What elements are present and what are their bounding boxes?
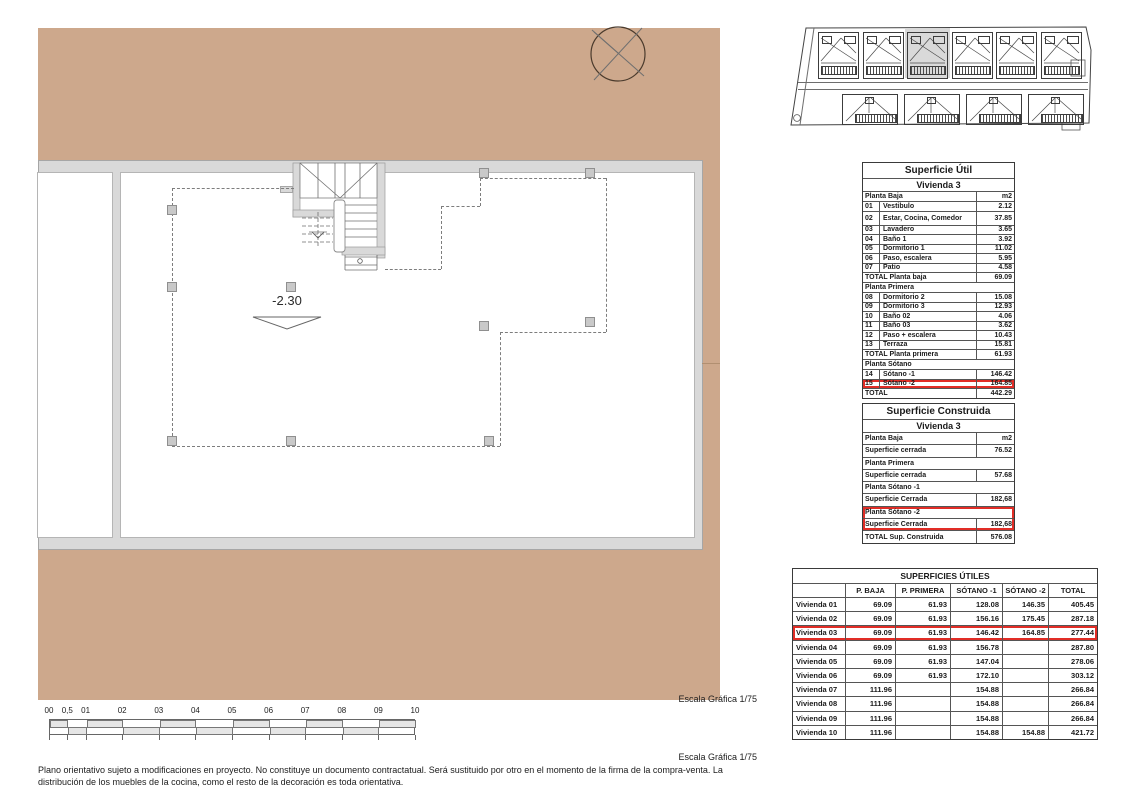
villa-unit-top [818, 32, 859, 79]
villa-unit-top [952, 32, 993, 79]
row-number: 11 [863, 322, 880, 331]
row-value: 61.93 [895, 612, 950, 625]
terrace-hatch [821, 66, 857, 75]
furniture-rect [1000, 36, 1010, 44]
row-label: Baño 1 [880, 236, 976, 243]
graphic-scale-bar [49, 719, 415, 735]
row-label: Vivienda 08 [793, 697, 845, 710]
row-value: 442.29 [976, 389, 1014, 398]
table-row: Vivienda 09111.96154.88266.84 [793, 711, 1097, 725]
scale-tick [415, 735, 416, 740]
pillar-footing [585, 317, 595, 327]
column-header: TOTAL [1048, 584, 1097, 597]
row-label: Vivienda 09 [793, 712, 845, 725]
row-label: Vivienda 05 [793, 655, 845, 668]
row-value: 69.09 [845, 655, 895, 668]
table-row: 15 Sótano -2 164.85 [863, 379, 1014, 389]
row-value: 405.45 [1048, 598, 1097, 611]
disclaimer-text: Plano orientativo sujeto a modificacione… [38, 765, 764, 788]
row-value: 12.93 [976, 303, 1014, 312]
table-row: TOTAL Sup. Construida576.08 [863, 530, 1014, 543]
villa-unit-bottom [1028, 94, 1084, 125]
row-value: 156.78 [950, 641, 1002, 654]
row-label: Paso + escalera [880, 332, 976, 339]
row-label: Superficie Cerrada [863, 521, 976, 528]
row-value: 182,68 [976, 494, 1014, 506]
row-number: 06 [863, 254, 880, 263]
row-value: 164.85 [976, 380, 1014, 389]
table-row: Vivienda 10111.96154.88154.88421.72 [793, 725, 1097, 739]
scale-label: 04 [191, 706, 200, 715]
row-value: 15.81 [976, 341, 1014, 350]
villa-unit-bottom [966, 94, 1022, 125]
road-line [798, 82, 1088, 83]
row-value: 61.93 [895, 655, 950, 668]
road-line [798, 89, 1088, 90]
row-value: 266.84 [1048, 712, 1097, 725]
column-header [793, 584, 845, 597]
terrace-hatch [866, 66, 902, 75]
scale-label: 08 [337, 706, 346, 715]
excavation-outline [385, 269, 441, 270]
row-number: 14 [863, 370, 880, 379]
furniture-rect [822, 36, 832, 44]
row-value: 15.08 [976, 293, 1014, 302]
row-value [895, 683, 950, 696]
excavation-outline [441, 206, 480, 207]
table-row: Planta Bajam2 [863, 432, 1014, 444]
terrace-hatch [1041, 114, 1083, 123]
row-value: 303.12 [1048, 669, 1097, 682]
scale-segment [270, 727, 307, 735]
scale-tick [86, 735, 87, 740]
excavation-outline [441, 206, 442, 269]
scale-segment [233, 720, 270, 728]
scale-segment [50, 720, 68, 728]
scale-segment [68, 727, 86, 735]
scale-segment [379, 720, 416, 728]
row-value: 154.88 [950, 697, 1002, 710]
table-row: Vivienda 0469.0961.93156.78287.80 [793, 640, 1097, 654]
scale-segment [160, 720, 197, 728]
row-label: Dormitorio 2 [880, 294, 976, 301]
row-value [895, 697, 950, 710]
row-label: Vivienda 02 [793, 612, 845, 625]
row-value: 154.88 [950, 683, 1002, 696]
row-number: 05 [863, 245, 880, 254]
row-value: 5.95 [976, 254, 1014, 263]
terrace-hatch [917, 114, 959, 123]
neighbor-room [37, 172, 113, 538]
scale-label: 0,5 [62, 706, 73, 715]
row-label: Planta Sótano -2 [863, 509, 1014, 516]
scale-segment [123, 727, 160, 735]
row-value: 421.72 [1048, 726, 1097, 739]
row-value: 2.12 [976, 202, 1014, 211]
scale-tick [305, 735, 306, 740]
table-row: Vivienda 08111.96154.88266.84 [793, 696, 1097, 710]
scale-segment [306, 720, 343, 728]
superficie-construida-table: Superficie ConstruidaVivienda 3Planta Ba… [862, 403, 1015, 544]
row-value [1002, 641, 1048, 654]
site-key-plan [788, 22, 1100, 134]
row-value: 277.44 [1048, 626, 1097, 639]
scale-tick [122, 735, 123, 740]
table-subtitle: Vivienda 3 [863, 178, 1014, 191]
row-value: 172.10 [950, 669, 1002, 682]
row-value: 3.92 [976, 235, 1014, 244]
table-row: 09 Dormitorio 3 12.93 [863, 302, 1014, 312]
table-row: Vivienda 07111.96154.88266.84 [793, 682, 1097, 696]
scale-tick [67, 735, 68, 740]
footer-scale-label: Escala Gráfica 1/75 [600, 752, 757, 762]
table-row: 01 Vestibulo 2.12 [863, 201, 1014, 211]
plan-scale-label: Escala Gráfica 1/75 [600, 694, 757, 704]
table-row: TOTAL Planta baja69.09 [863, 272, 1014, 282]
row-value: 164.85 [1002, 626, 1048, 639]
table-title: Superficie Útil [863, 163, 1014, 178]
row-label: Vivienda 04 [793, 641, 845, 654]
row-value: 61.93 [895, 626, 950, 639]
row-value: 37.85 [976, 212, 1014, 225]
furniture-rect [1045, 36, 1055, 44]
row-value: 111.96 [845, 697, 895, 710]
row-value: 154.88 [1002, 726, 1048, 739]
row-number: 02 [863, 212, 880, 225]
row-value: 57.68 [976, 470, 1014, 482]
scale-label: 09 [374, 706, 383, 715]
scale-label: 01 [81, 706, 90, 715]
table-row: 14 Sótano -1 146.42 [863, 369, 1014, 379]
scale-segment [87, 720, 124, 728]
villa-unit-top [863, 32, 904, 79]
table-row: Planta Bajam2 [863, 191, 1014, 201]
row-value: 182,68 [976, 519, 1014, 531]
row-label: Sótano -2 [880, 380, 976, 387]
north-arrow-icon [586, 22, 650, 86]
pillar-footing [286, 282, 296, 292]
row-value: 287.80 [1048, 641, 1097, 654]
row-value: m2 [976, 433, 1014, 444]
row-value: 61.93 [895, 598, 950, 611]
row-label: Baño 03 [880, 322, 976, 329]
table-row: Superficie Cerrada182,68 [863, 493, 1014, 506]
row-label: TOTAL [863, 390, 976, 397]
furniture-rect [933, 36, 945, 44]
row-value: 146.35 [1002, 598, 1048, 611]
row-value: 111.96 [845, 712, 895, 725]
row-value: 3.62 [976, 322, 1014, 331]
table-row: 02 Estar, Cocina, Comedor 37.85 [863, 211, 1014, 225]
row-value: 61.93 [895, 641, 950, 654]
table-row: Planta Sótano -2 [863, 506, 1014, 518]
row-value: 10.43 [976, 331, 1014, 340]
row-value: 266.84 [1048, 683, 1097, 696]
table-row: Planta Sótano [863, 359, 1014, 369]
row-label: TOTAL Planta baja [863, 274, 976, 281]
scale-label: 10 [411, 706, 420, 715]
furniture-rect [1022, 36, 1034, 44]
row-label: Sótano -1 [880, 371, 976, 378]
graphic-scale: 000,501020304050607080910 [49, 706, 419, 742]
terrace-hatch [1044, 66, 1080, 75]
villa-unit-bottom [904, 94, 960, 125]
furniture-rect [927, 97, 936, 104]
table-row: Vivienda 0369.0961.93146.42164.85277.44 [793, 625, 1097, 639]
table-row: TOTAL Planta primera61.93 [863, 349, 1014, 359]
row-value: 4.06 [976, 312, 1014, 321]
excavation-outline [480, 178, 606, 179]
excavation-outline [172, 188, 173, 446]
row-number: 12 [863, 331, 880, 340]
column-header: SÓTANO -2 [1002, 584, 1048, 597]
row-label: Vivienda 01 [793, 598, 845, 611]
stair-icon [288, 158, 433, 304]
row-value: 69.09 [845, 626, 895, 639]
scale-segment [196, 727, 233, 735]
furniture-rect [867, 36, 877, 44]
row-value: 69.09 [845, 598, 895, 611]
column-header: P. BAJA [845, 584, 895, 597]
row-number: 13 [863, 341, 880, 350]
row-number: 03 [863, 226, 880, 235]
pillar-footing [286, 436, 296, 446]
row-label: Vivienda 03 [793, 626, 845, 639]
row-value: 69.09 [845, 669, 895, 682]
row-value: 266.84 [1048, 697, 1097, 710]
table-row: Vivienda 0269.0961.93156.16175.45287.18 [793, 611, 1097, 625]
table-row: Superficie cerrada57.68 [863, 469, 1014, 482]
furniture-rect [865, 97, 874, 104]
table-row: Planta Primera [863, 457, 1014, 469]
row-label: Superficie cerrada [863, 472, 976, 479]
pillar-footing [167, 205, 177, 215]
excavation-outline [606, 178, 607, 332]
terrace-hatch [979, 114, 1021, 123]
superficie-util-table: Superficie ÚtilVivienda 3Planta Bajam201… [862, 162, 1015, 399]
table-title: SUPERFICIES ÚTILES [793, 569, 1097, 583]
row-label: Vivienda 06 [793, 669, 845, 682]
table-row: 07 Patio 4.58 [863, 263, 1014, 273]
superficies-utiles-table: SUPERFICIES ÚTILESP. BAJAP. PRIMERASÓTAN… [792, 568, 1098, 740]
column-header: SÓTANO -1 [950, 584, 1002, 597]
table-row: 03 Lavadero 3.65 [863, 225, 1014, 235]
table-row: 08 Dormitorio 2 15.08 [863, 292, 1014, 302]
row-value: 76.52 [976, 445, 1014, 457]
row-value: 111.96 [845, 726, 895, 739]
terrace-hatch [910, 66, 946, 75]
table-row: Superficie Cerrada182,68 [863, 518, 1014, 531]
scale-tick [269, 735, 270, 740]
row-label: Patio [880, 264, 976, 271]
row-value: 576.08 [976, 531, 1014, 543]
villa-unit-top [907, 32, 948, 79]
table-row: TOTAL442.29 [863, 388, 1014, 398]
row-value: 154.88 [950, 726, 1002, 739]
row-value: 147.04 [950, 655, 1002, 668]
row-label: TOTAL Planta primera [863, 351, 976, 358]
row-value: 175.45 [1002, 612, 1048, 625]
excavation-outline [480, 178, 481, 206]
table-row: Superficie cerrada76.52 [863, 444, 1014, 457]
table-row: Planta Sótano -1 [863, 481, 1014, 493]
scale-label: 06 [264, 706, 273, 715]
terrain-boundary-line [702, 363, 720, 364]
scale-tick [159, 735, 160, 740]
furniture-rect [978, 36, 990, 44]
table-row: 12 Paso + escalera 10.43 [863, 330, 1014, 340]
row-value [1002, 697, 1048, 710]
pillar-footing [167, 436, 177, 446]
excavation-outline [500, 332, 606, 333]
row-label: Planta Primera [863, 284, 1014, 291]
row-value: 4.58 [976, 264, 1014, 273]
table-row: 11 Baño 03 3.62 [863, 321, 1014, 331]
scale-tick [342, 735, 343, 740]
terrace-hatch [999, 66, 1035, 75]
scale-label: 03 [154, 706, 163, 715]
villa-unit-bottom [842, 94, 898, 125]
scale-tick [49, 735, 50, 740]
row-label: Planta Sótano [863, 361, 1014, 368]
row-value [895, 712, 950, 725]
row-label: Planta Baja [863, 193, 976, 200]
furniture-rect [956, 36, 966, 44]
row-label: Superficie cerrada [863, 447, 976, 454]
table-row: Planta Primera [863, 282, 1014, 292]
scale-label: 02 [118, 706, 127, 715]
row-label: Vivienda 10 [793, 726, 845, 739]
row-number: 07 [863, 264, 880, 273]
row-label: Vestibulo [880, 203, 976, 210]
row-value [895, 726, 950, 739]
row-label: TOTAL Sup. Construida [863, 534, 976, 541]
row-label: Terraza [880, 341, 976, 348]
pillar-footing [585, 168, 595, 178]
pillar-footing [484, 436, 494, 446]
table-row: 13 Terraza 15.81 [863, 340, 1014, 350]
row-label: Estar, Cocina, Comedor [880, 215, 976, 222]
row-value [1002, 669, 1048, 682]
row-value: 61.93 [895, 669, 950, 682]
villa-unit-top [996, 32, 1037, 79]
villa-unit-top [1041, 32, 1082, 79]
row-label: Baño 02 [880, 313, 976, 320]
terrace-hatch [955, 66, 991, 75]
row-label: Lavadero [880, 226, 976, 233]
scale-tick [195, 735, 196, 740]
row-number: 09 [863, 303, 880, 312]
table-row: 05 Dormitorio 1 11.02 [863, 244, 1014, 254]
scale-label: 05 [228, 706, 237, 715]
scale-label: 07 [301, 706, 310, 715]
column-header: P. PRIMERA [895, 584, 950, 597]
row-value: 69.09 [845, 641, 895, 654]
furniture-rect [1067, 36, 1079, 44]
pillar-footing [479, 321, 489, 331]
level-label: -2.30 [252, 293, 322, 308]
row-value: 69.09 [976, 273, 1014, 282]
table-row: Vivienda 0569.0961.93147.04278.06 [793, 654, 1097, 668]
excavation-outline [500, 332, 501, 446]
excavation-outline [172, 446, 500, 447]
row-number: 01 [863, 202, 880, 211]
level-marker-icon [252, 316, 322, 331]
pillar-footing [479, 168, 489, 178]
row-label: Superficie Cerrada [863, 496, 976, 503]
row-label: Planta Sótano -1 [863, 484, 1014, 491]
table-row: 04 Baño 1 3.92 [863, 234, 1014, 244]
furniture-rect [889, 36, 901, 44]
furniture-rect [1051, 97, 1060, 104]
row-value: 3.65 [976, 226, 1014, 235]
row-value: 11.02 [976, 245, 1014, 254]
row-value: 146.42 [950, 626, 1002, 639]
table-row: 10 Baño 02 4.06 [863, 311, 1014, 321]
row-value: m2 [976, 192, 1014, 201]
table-subtitle: Vivienda 3 [863, 419, 1014, 432]
table-row: 06 Paso, escalera 5.95 [863, 253, 1014, 263]
row-number: 15 [863, 380, 880, 389]
furniture-rect [844, 36, 856, 44]
row-value: 156.16 [950, 612, 1002, 625]
furniture-rect [989, 97, 998, 104]
row-value [1002, 655, 1048, 668]
row-label: Planta Primera [863, 460, 1014, 467]
furniture-rect [911, 36, 921, 44]
excavation-outline [172, 188, 294, 189]
scale-label: 00 [45, 706, 54, 715]
row-label: Planta Baja [863, 435, 976, 442]
row-label: Paso, escalera [880, 255, 976, 262]
table-title: Superficie Construida [863, 404, 1014, 419]
row-number: 08 [863, 293, 880, 302]
row-value: 146.42 [976, 370, 1014, 379]
scale-tick [232, 735, 233, 740]
row-value: 111.96 [845, 683, 895, 696]
row-value: 128.08 [950, 598, 1002, 611]
row-value [1002, 683, 1048, 696]
row-value [1002, 712, 1048, 725]
pillar-footing [167, 282, 177, 292]
row-label: Dormitorio 1 [880, 245, 976, 252]
table-header-row: P. BAJAP. PRIMERASÓTANO -1SÓTANO -2TOTAL [793, 583, 1097, 597]
row-label: Vivienda 07 [793, 683, 845, 696]
terrace-hatch [855, 114, 897, 123]
row-value: 69.09 [845, 612, 895, 625]
row-number: 04 [863, 235, 880, 244]
table-row: Vivienda 0669.0961.93172.10303.12 [793, 668, 1097, 682]
row-value: 287.18 [1048, 612, 1097, 625]
scale-tick [378, 735, 379, 740]
row-value: 278.06 [1048, 655, 1097, 668]
table-row: Vivienda 0169.0961.93128.08146.35405.45 [793, 597, 1097, 611]
row-label: Dormitorio 3 [880, 303, 976, 310]
row-value: 61.93 [976, 350, 1014, 359]
row-value: 154.88 [950, 712, 1002, 725]
row-number: 10 [863, 312, 880, 321]
scale-segment [343, 727, 380, 735]
floor-plan: -2.30 [38, 28, 720, 700]
